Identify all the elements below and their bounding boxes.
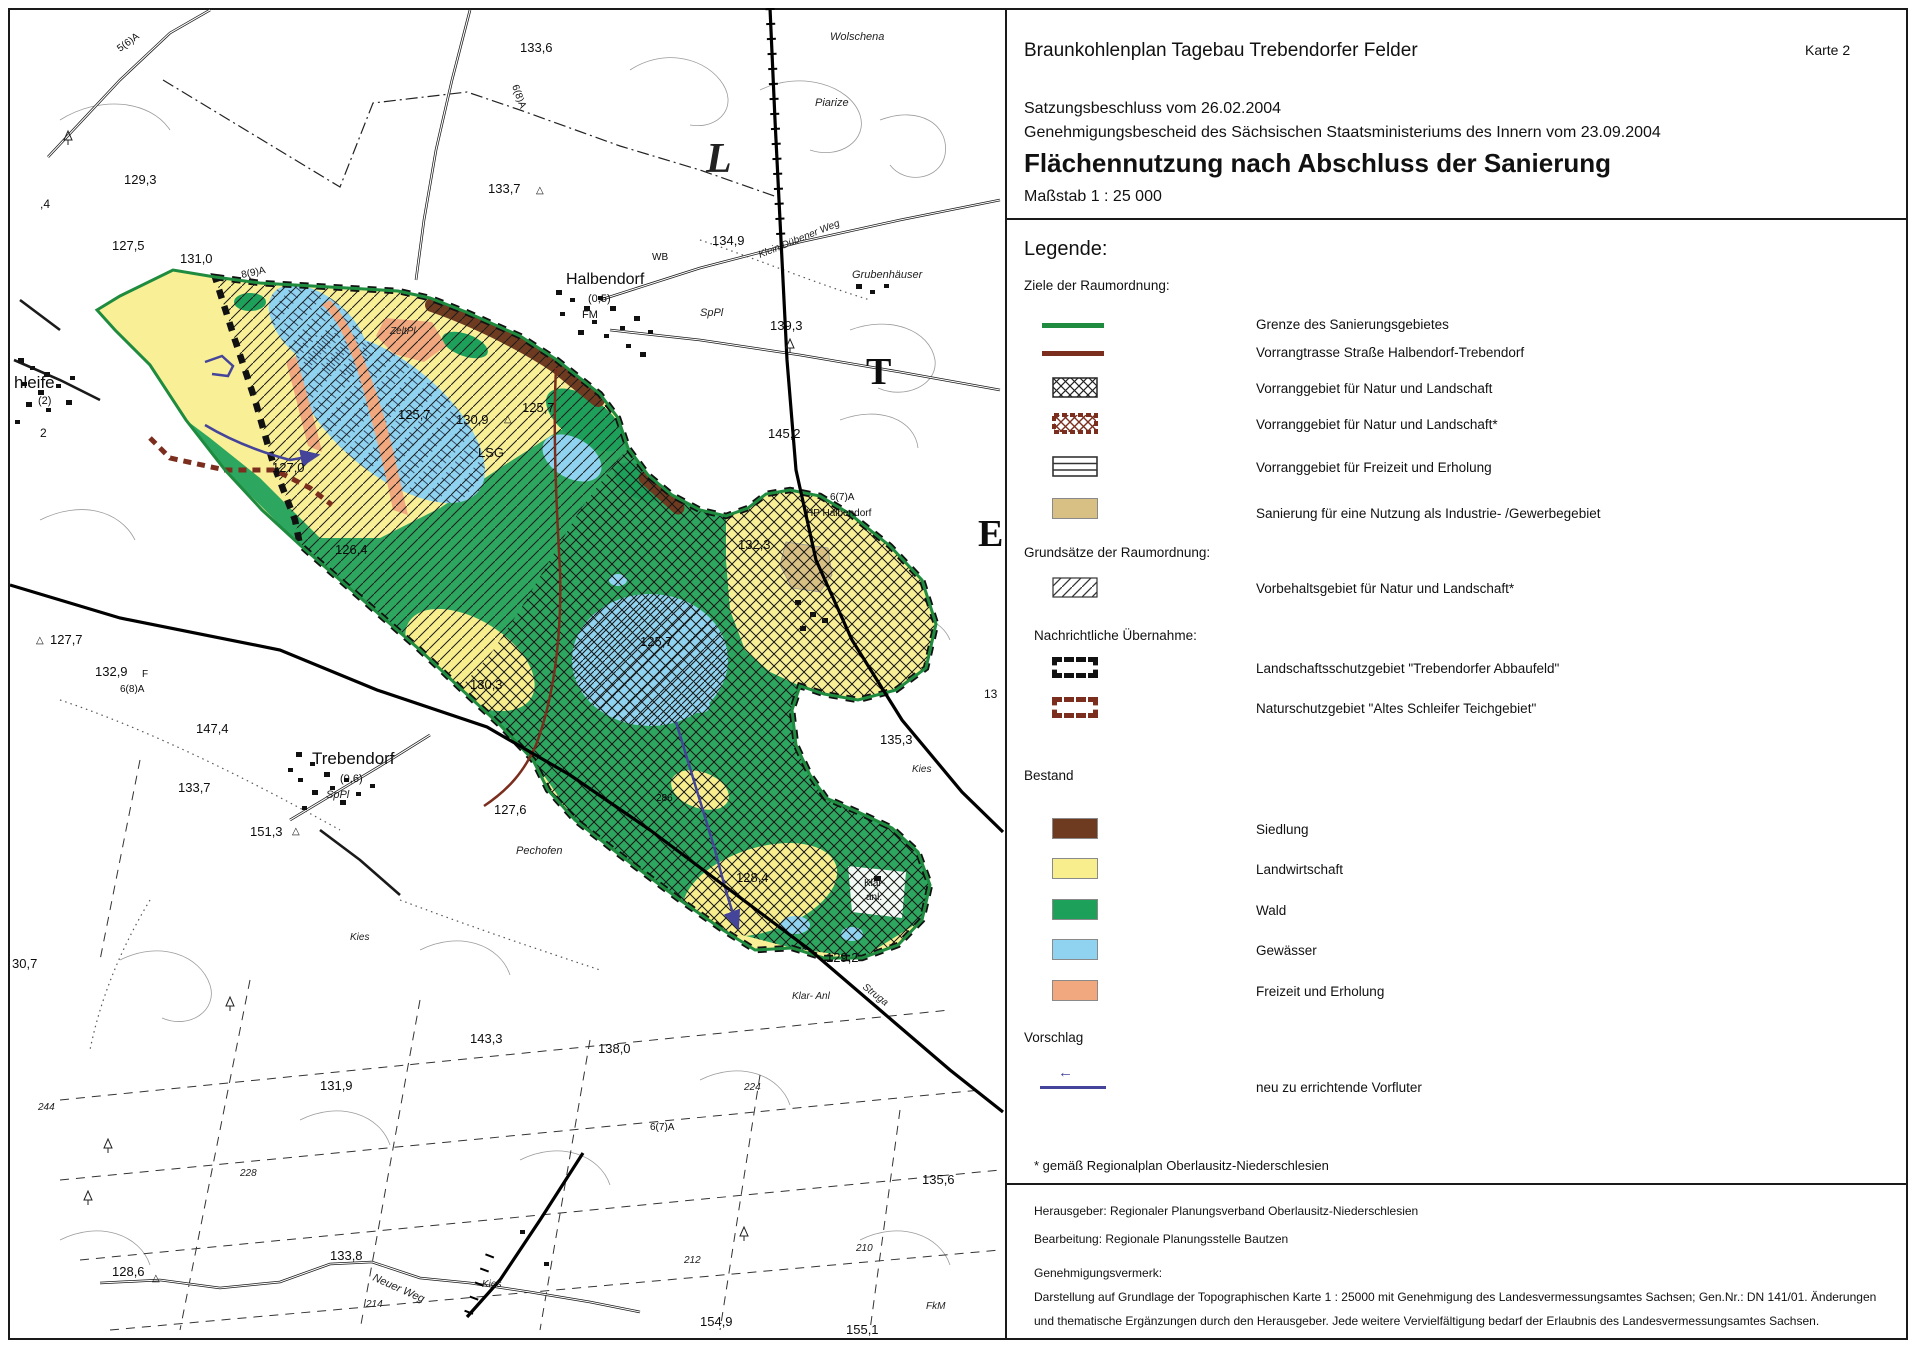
map-label: Piarize: [815, 97, 849, 109]
header-divider: [1007, 218, 1908, 220]
map-label: Pechofen: [516, 845, 562, 857]
legend-section-ziele: Ziele der Raumordnung:: [1024, 278, 1170, 293]
map-label: L: [705, 136, 732, 182]
map-label: 147,4: [196, 721, 229, 736]
map-label: 125,7: [398, 407, 431, 422]
map-label: 135,3: [880, 732, 913, 747]
legend-swatch-grenze-line: [1042, 323, 1104, 328]
imprint-divider: [1007, 1183, 1908, 1185]
map-label: 244: [37, 1102, 55, 1113]
map-label: 132,9: [95, 664, 128, 679]
sheet-number: Karte 2: [1805, 42, 1850, 58]
map-label: 133,8: [330, 1248, 363, 1263]
map-label: Trebendorf: [312, 749, 395, 768]
map-label: 6(7)A: [830, 492, 855, 503]
map-label: △: [36, 635, 44, 646]
legend-label-trasse: Vorrangtrasse Straße Halbendorf-Trebendo…: [1256, 345, 1524, 360]
imprint-editor: Bearbeitung: Regionale Planungsstelle Ba…: [1034, 1232, 1288, 1246]
legend-swatch-trasse-line: [1042, 351, 1104, 356]
map-label: anl.: [866, 892, 882, 903]
legend-label-nsg: Naturschutzgebiet "Altes Schleifer Teich…: [1256, 701, 1536, 716]
map-label: 128,4: [736, 870, 769, 885]
map-label: 131,9: [320, 1078, 353, 1093]
imprint-approval-text2: und thematische Ergänzungen durch den He…: [1034, 1314, 1819, 1328]
legend-label-vorfluter: neu zu errichtende Vorfluter: [1256, 1080, 1422, 1095]
legend-label-vorrang-freizeit: Vorranggebiet für Freizeit und Erholung: [1256, 460, 1492, 475]
legend-swatch-freizeit: [1052, 980, 1098, 1001]
map-label: 127,5: [112, 238, 145, 253]
panel-divider: [1005, 8, 1007, 1340]
map-label: T: [866, 351, 891, 393]
legend-section-bestand: Bestand: [1024, 768, 1074, 783]
map-label: 210: [855, 1243, 873, 1254]
map-label: △: [504, 414, 512, 425]
map-label: 131,0: [180, 251, 213, 266]
legend-swatch-vorfluter-line: [1040, 1086, 1106, 1089]
map-label: 224: [743, 1082, 761, 1093]
legend-swatch-industrie: [1052, 498, 1098, 519]
scale-label: Maßstab 1 : 25 000: [1024, 188, 1162, 206]
map-label: 5(6)A: [115, 31, 142, 54]
map-label: 133,6: [520, 40, 553, 55]
legend-label-freizeit: Freizeit und Erholung: [1256, 984, 1384, 999]
map-label: △: [536, 185, 544, 196]
map-label: 13: [984, 687, 998, 701]
legend-swatch-gewaesser: [1052, 939, 1098, 960]
vorfluter-arrow-icon: ←: [1058, 1064, 1073, 1081]
map-label: (2): [38, 395, 51, 407]
map-label: 125,7: [522, 400, 555, 415]
topographic-map: 133,6WolschenaPiarize133,7△134,9Klein Dü…: [10, 8, 1005, 1340]
map-title: Braunkohlenplan Tagebau Trebendorfer Fel…: [1024, 40, 1418, 62]
legend-heading: Legende:: [1024, 238, 1107, 261]
map-label: 125,7: [640, 634, 673, 649]
map-label: FkM: [926, 1301, 946, 1312]
map-label: 212: [683, 1255, 701, 1266]
imprint-publisher: Herausgeber: Regionaler Planungsverband …: [1034, 1204, 1418, 1218]
map-label: E: [978, 513, 1003, 555]
map-label: 8(9)A: [240, 265, 267, 281]
map-label: LSG: [478, 445, 504, 460]
legend-swatch-nsg: [1052, 697, 1098, 718]
legend-label-siedlung: Siedlung: [1256, 822, 1309, 837]
map-label: F: [142, 669, 148, 680]
legend-section-nachrichtlich: Nachrichtliche Übernahme:: [1034, 628, 1197, 643]
map-label: 139,3: [770, 318, 803, 333]
legend-swatch-crosshatch-icon: [1052, 377, 1098, 398]
map-label: Klar- Anl: [792, 991, 831, 1002]
legend-swatch-hlines-icon: [1052, 456, 1098, 477]
subject-title: Flächennutzung nach Abschluss der Sanier…: [1024, 148, 1611, 179]
map-label: △: [292, 826, 300, 837]
map-label: Kies: [350, 932, 369, 943]
map-label: 133,7: [488, 181, 521, 196]
map-label: (0,5): [588, 293, 611, 305]
legend-swatch-hatch-icon: [1052, 577, 1098, 598]
map-label: 6(8)A: [509, 83, 528, 110]
legend-swatch-siedlung: [1052, 818, 1098, 839]
legend-swatch-wald: [1052, 899, 1098, 920]
map-label: 127,0: [272, 460, 305, 475]
map-label: Klär-: [864, 878, 885, 889]
resolution-line: Satzungsbeschluss vom 26.02.2004: [1024, 100, 1281, 118]
legend-swatch-landwirtschaft: [1052, 858, 1098, 879]
legend-label-lsg: Landschaftsschutzgebiet "Trebendorfer Ab…: [1256, 661, 1559, 676]
legend-label-landwirtschaft: Landwirtschaft: [1256, 862, 1343, 877]
map-label: ZeltPl: [389, 326, 416, 337]
map-label: Kies: [912, 764, 931, 775]
map-label: HP Halbendorf: [806, 508, 872, 519]
map-label: 228: [239, 1168, 257, 1179]
map-label: 6(8)A: [120, 684, 145, 695]
map-label: 127,7: [50, 632, 83, 647]
legend-label-vorrang-natur: Vorranggebiet für Natur und Landschaft: [1256, 381, 1492, 396]
legend-swatch-crosshatch-brown-icon: [1052, 413, 1098, 434]
map-label: 214: [365, 1299, 383, 1310]
map-label: 133,7: [178, 780, 211, 795]
map-label: 286: [656, 793, 673, 804]
map-label: 134,9: [712, 233, 745, 248]
map-label: Wolschena: [830, 31, 884, 43]
legend-footnote: * gemäß Regionalplan Oberlausitz-Nieders…: [1034, 1158, 1329, 1173]
map-label: 132,3: [738, 537, 771, 552]
map-label: 126,4: [335, 542, 368, 557]
map-label: WB: [652, 252, 668, 263]
map-label: SpPl: [700, 307, 724, 319]
map-label: SpPl: [326, 789, 350, 801]
map-label: 127,6: [494, 802, 527, 817]
imprint-approval-text1: Darstellung auf Grundlage der Topographi…: [1034, 1290, 1876, 1304]
map-label: (0,6): [340, 773, 363, 785]
map-label: 30,7: [12, 956, 37, 971]
legend-label-gewaesser: Gewässer: [1256, 943, 1317, 958]
map-label: 135,6: [922, 1172, 955, 1187]
legend-label-vorrang-natur-star: Vorranggebiet für Natur und Landschaft*: [1256, 417, 1498, 432]
map-label: 128,6: [112, 1264, 145, 1279]
legend-section-grundsaetze: Grundsätze der Raumordnung:: [1024, 545, 1210, 560]
map-label: 2: [40, 426, 47, 440]
planning-map-sheet: 133,6WolschenaPiarize133,7△134,9Klein Dü…: [0, 0, 1920, 1348]
map-label: Kies: [482, 1279, 501, 1290]
map-label: Halbendorf: [566, 271, 645, 288]
map-label: 138,0: [598, 1041, 631, 1056]
legend-label-wald: Wald: [1256, 903, 1286, 918]
legend-label-industrie: Sanierung für eine Nutzung als Industrie…: [1256, 506, 1600, 521]
map-label: 129,2: [826, 950, 859, 965]
map-label: △: [152, 1273, 160, 1284]
map-label: 151,3: [250, 824, 283, 839]
map-label: 130,3: [470, 677, 503, 692]
map-label: 6(7)A: [650, 1122, 675, 1133]
legend-section-vorschlag: Vorschlag: [1024, 1030, 1083, 1045]
map-label: hleife: [14, 373, 55, 392]
map-label: FM: [582, 309, 598, 321]
map-label: 154,9: [700, 1314, 733, 1329]
map-label: 155,1: [846, 1322, 879, 1337]
legend-label-vorbehalt: Vorbehaltsgebiet für Natur und Landschaf…: [1256, 581, 1514, 596]
map-label: Grubenhäuser: [852, 269, 924, 281]
map-label: 129,3: [124, 172, 157, 187]
map-label: 145,2: [768, 426, 801, 441]
map-label: 130,9: [456, 412, 489, 427]
map-label: Klein Dübener Weg: [757, 218, 842, 261]
map-label: ,4: [40, 197, 50, 211]
legend-label-grenze: Grenze des Sanierungsgebietes: [1256, 317, 1449, 332]
legend-swatch-lsg: [1052, 657, 1098, 678]
imprint-approval-heading: Genehmigungsvermerk:: [1034, 1266, 1162, 1280]
approval-line: Genehmigungsbescheid des Sächsischen Sta…: [1024, 124, 1661, 142]
map-label: 143,3: [470, 1031, 503, 1046]
